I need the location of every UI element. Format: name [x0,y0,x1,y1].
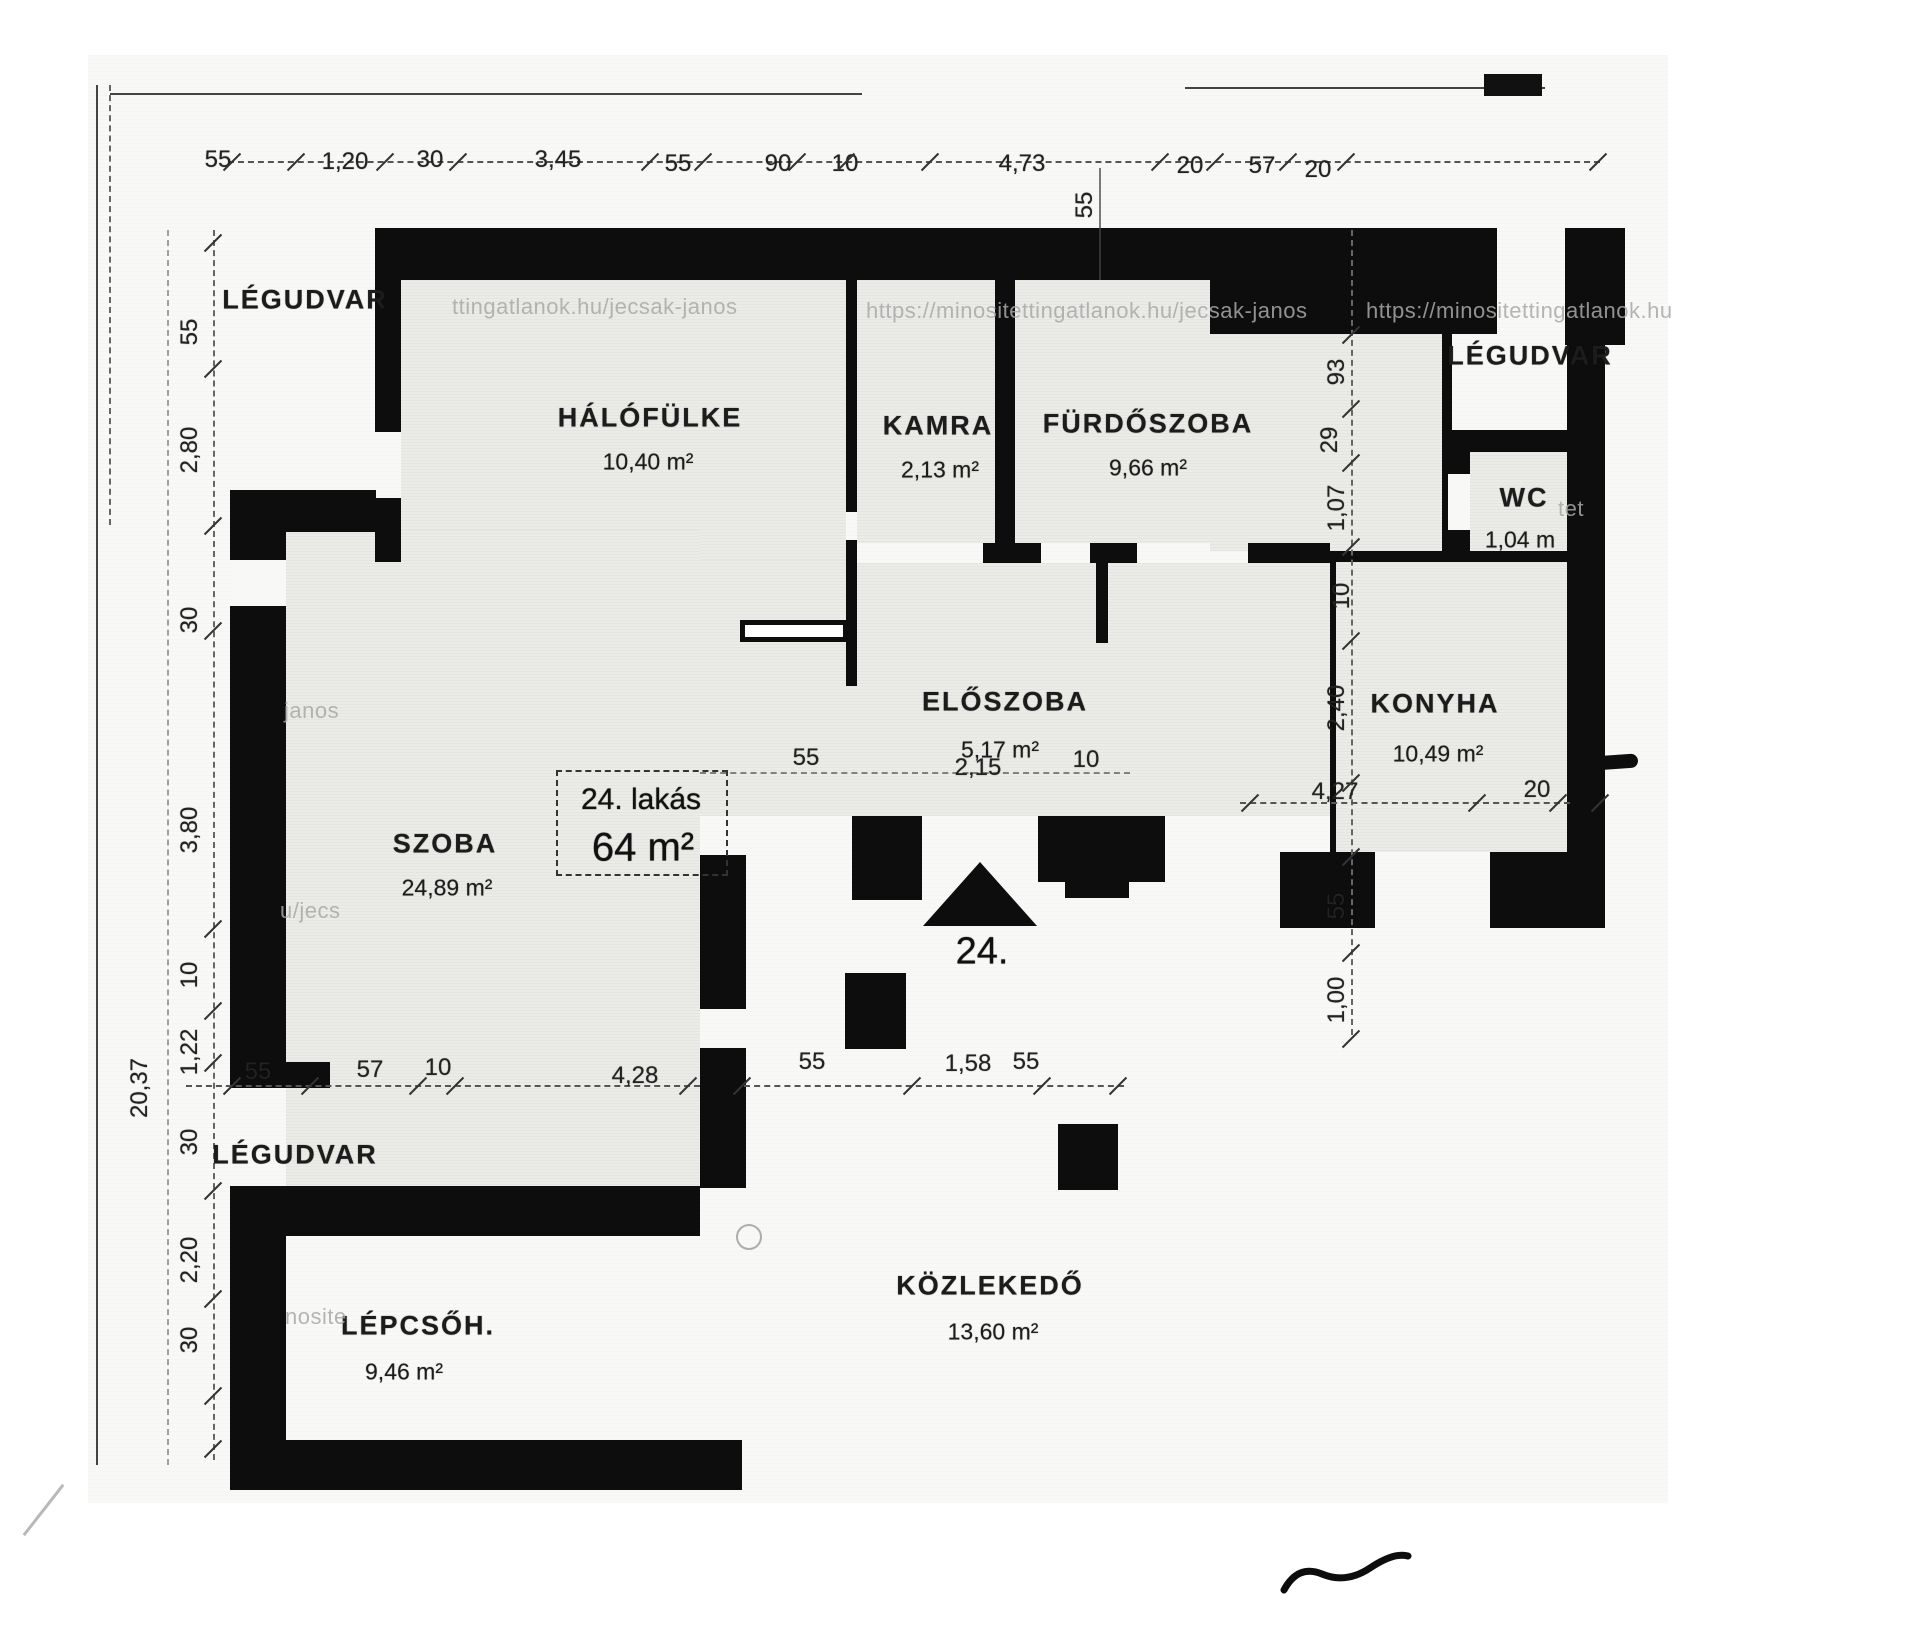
page-border-left-dashed [109,85,111,525]
room-label: ELŐSZOBA [922,687,1088,718]
dimension-label: 30 [176,1129,204,1156]
scan-edge-scratch [23,1484,65,1536]
wall-segment [983,543,1041,563]
dimension-label: 57 [1249,152,1276,180]
dimension-label: 10 [1328,583,1356,610]
wall-segment [846,540,857,686]
room-area-value: 13,60 m² [948,1319,1039,1346]
dimension-label: 1,07 [1323,485,1351,532]
dimension-label: 2,20 [176,1237,204,1284]
wall-segment [846,280,857,512]
dimension-label: 55 [799,1048,826,1076]
wall-segment [700,1048,746,1188]
scan-corner-mark [1484,74,1542,96]
unit-title: 24. lakás [581,783,701,817]
dimension-label: 20 [1305,156,1332,184]
wall-segment [1058,1124,1118,1190]
room-label: LÉPCSŐH. [341,1311,495,1342]
entrance-arrow-icon [923,862,1037,926]
dim-line-kitchen [1240,802,1570,804]
room-area-value: 24,89 m² [402,875,493,902]
dimension-label: 55 [1323,893,1351,920]
dim-line-right [1351,230,1353,1035]
pen-circle-mark [736,1224,762,1250]
dim-line-far-left [167,230,169,1465]
dimension-label: 55 [665,150,692,178]
watermark-text: ttingatlanok.hu/jecsak-janos [452,294,738,320]
dimension-label: 55 [793,744,820,772]
dimension-label: 10 [176,962,204,989]
dimension-label: 30 [176,1327,204,1354]
room-area-value: 10,49 m² [1393,741,1484,768]
dimension-label: 55 [245,1058,272,1086]
wall-segment [700,855,746,1009]
watermark-text: nosite [285,1304,347,1330]
window-gap [230,560,286,606]
wall-segment [1090,543,1137,563]
wall-segment [375,228,1210,280]
dimension-label: 57 [357,1056,384,1084]
dimension-label: 30 [176,607,204,634]
dim-line-hall [700,772,1130,774]
dimension-label: 1,20 [322,148,369,176]
room-label: KAMRA [883,411,994,442]
wall-segment [1565,228,1625,345]
door-gap [1448,474,1470,530]
dim-line-top-short [1099,168,1101,280]
room-label: LÉGUDVAR [212,1140,378,1171]
room-area-value: 1,04 m [1485,527,1555,554]
wall-segment [230,490,376,532]
dimension-label: 20 [1524,776,1551,804]
wall-segment [230,1186,286,1462]
dimension-label: 4,73 [999,150,1046,178]
room-label: WC [1500,483,1549,514]
room-label: FÜRDŐSZOBA [1043,409,1254,440]
room-label: SZOBA [393,829,498,860]
dimension-label: 1,58 [945,1050,992,1078]
room-label: LÉGUDVAR [222,285,388,316]
room-label: KÖZLEKEDŐ [896,1271,1084,1302]
room-area-value: 9,66 m² [1109,455,1187,482]
dimension-label: 2,40 [1323,685,1351,732]
dimension-label: 10 [425,1054,452,1082]
dimension-label: 1,00 [1323,977,1351,1024]
page-border-top-left [110,93,862,95]
wall-segment [375,498,401,562]
dimension-label: 3,45 [535,146,582,174]
wall-segment [230,530,286,1062]
room-area-value: 9,46 m² [365,1359,443,1386]
room-label: LÉGUDVAR [1447,341,1613,372]
wall-segment [845,973,906,1049]
dimension-label: 93 [1323,359,1351,386]
watermark-text: tet [1558,496,1584,522]
dimension-label: 55 [1071,192,1099,219]
watermark-text: u/jecs [280,898,340,924]
watermark-text: janos [284,698,339,724]
page-border-left [96,85,98,1465]
wall-segment [1248,543,1330,563]
entrance-number: 24. [956,931,1009,974]
dimension-label: 20 [1177,152,1204,180]
room-label: HÁLÓFÜLKE [558,403,742,434]
floor-plan-scan: 24. lakás 64 m² 24. LÉGUDVARHÁLÓFÜLKE10,… [0,0,1920,1646]
dimension-label: 55 [1013,1048,1040,1076]
dimension-label: 55 [205,146,232,174]
wall-segment [852,816,922,900]
room-area-value: 10,40 m² [603,449,694,476]
room-area-value: 2,13 m² [901,457,979,484]
watermark-text: https://minositettingatlanok.hu [1366,298,1673,324]
unit-area: 64 m² [592,826,694,871]
room-label: KONYHA [1370,689,1499,720]
dimension-label: 1,22 [176,1029,204,1076]
dim-line-entry-right [744,1085,1124,1087]
dimension-label: 20,37 [126,1058,154,1118]
wall-segment [230,1440,742,1490]
wall-segment [740,620,848,642]
wall-segment [1490,852,1605,928]
dimension-label: 30 [417,146,444,174]
wall-segment [1096,563,1108,643]
dimension-label: 2,80 [176,427,204,474]
dimension-label: 90 [765,150,792,178]
dimension-label: 29 [1316,427,1344,454]
dimension-label: 4,28 [612,1062,659,1090]
dimension-label: 55 [176,319,204,346]
dimension-label: 3,80 [176,807,204,854]
watermark-text: https://minositettingatlanok.hu/jecsak-j… [866,298,1307,324]
dim-line-left [213,230,215,1460]
wall-segment [1038,816,1165,882]
dimension-label: 2,15 [955,754,1002,782]
wall-segment [230,1186,700,1236]
dimension-label: 10 [1073,746,1100,774]
pen-squiggle-mark [1278,1546,1428,1602]
wall-segment [1065,882,1129,898]
